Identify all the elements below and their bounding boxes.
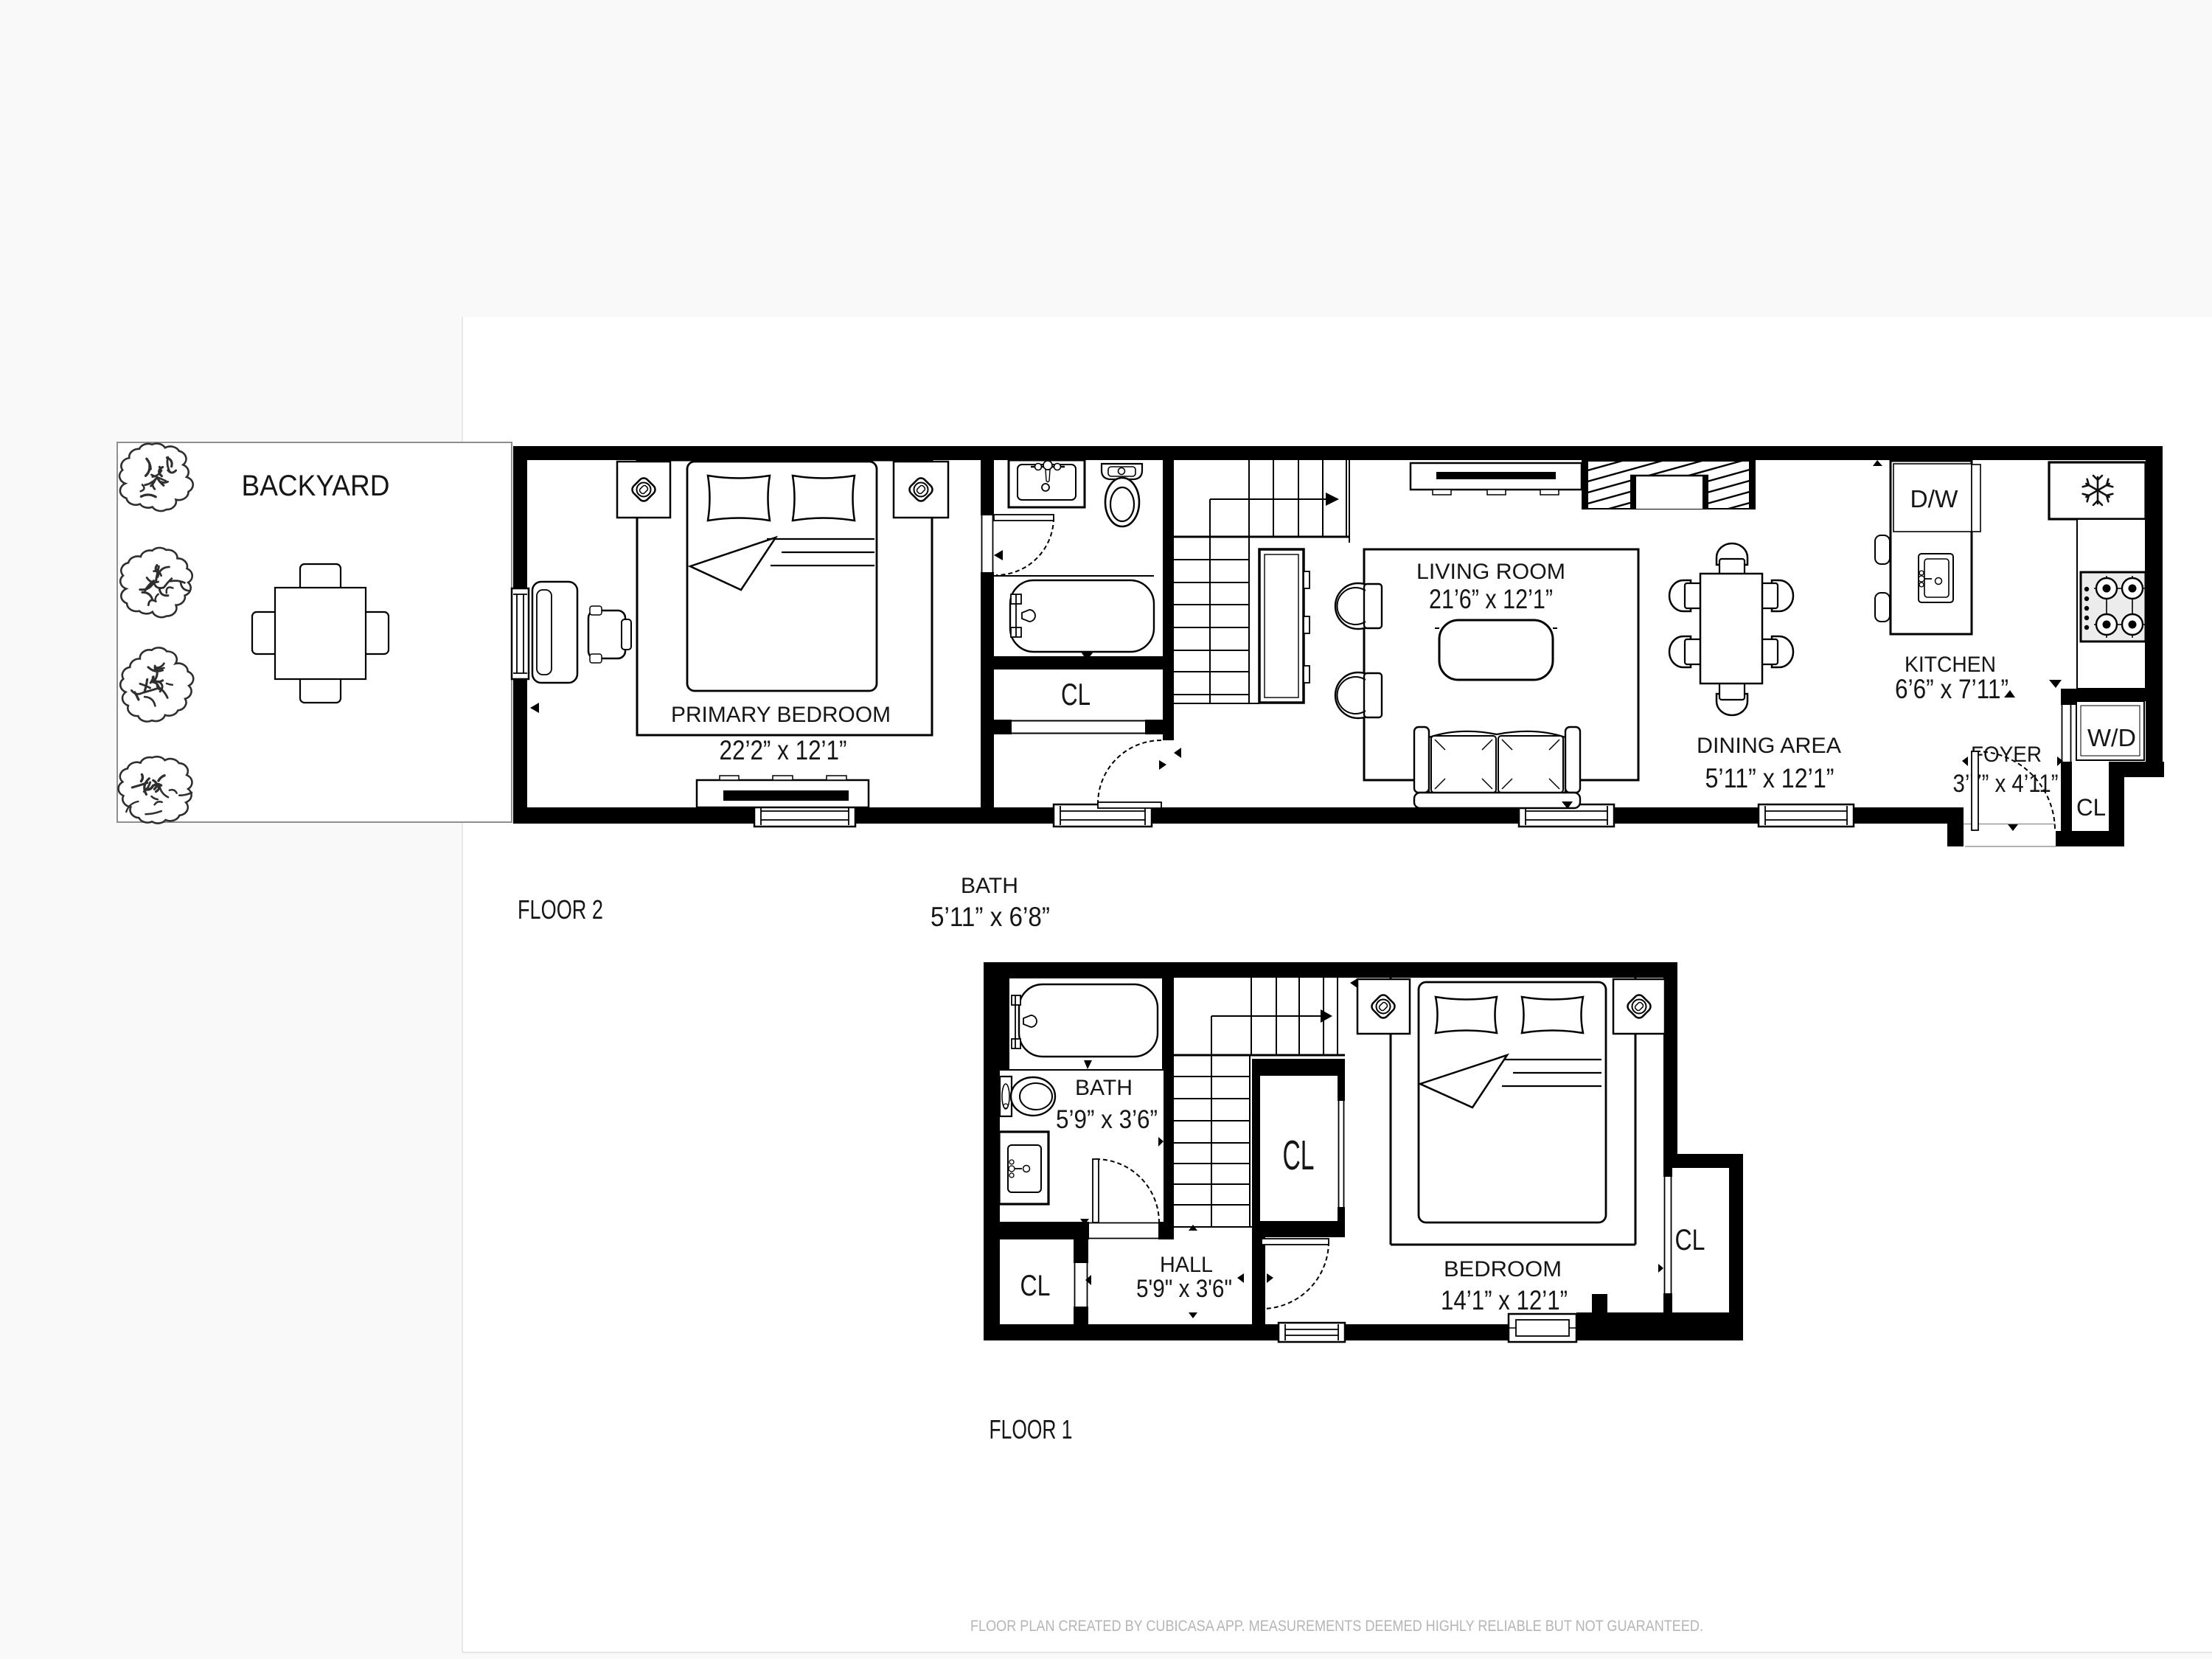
svg-text:5’11” x 12’1”: 5’11” x 12’1”: [1705, 763, 1834, 793]
svg-text:PRIMARY BEDROOM: PRIMARY BEDROOM: [671, 703, 891, 727]
svg-text:22’2” x 12’1”: 22’2” x 12’1”: [720, 735, 847, 765]
svg-text:6’6” x 7’11”: 6’6” x 7’11”: [1895, 674, 2008, 704]
svg-text:5’9” x 3’6”: 5’9” x 3’6”: [1056, 1105, 1158, 1134]
svg-text:5'9" x 3'6": 5'9" x 3'6": [1136, 1275, 1232, 1303]
svg-text:CL: CL: [2076, 794, 2106, 821]
svg-text:FLOOR PLAN CREATED BY CUBICASA: FLOOR PLAN CREATED BY CUBICASA APP. MEAS…: [970, 1618, 1703, 1635]
svg-text:FLOOR 1: FLOOR 1: [990, 1414, 1073, 1444]
svg-text:D/W: D/W: [1910, 485, 1959, 512]
svg-text:14’1” x 12’1”: 14’1” x 12’1”: [1441, 1285, 1568, 1315]
svg-text:W/D: W/D: [2087, 724, 2136, 751]
svg-text:BACKYARD: BACKYARD: [242, 470, 390, 502]
svg-text:CL: CL: [1061, 677, 1091, 712]
svg-text:BATH: BATH: [961, 874, 1018, 898]
svg-text:CL: CL: [1283, 1132, 1315, 1179]
svg-text:DINING AREA: DINING AREA: [1697, 734, 1841, 758]
svg-text:HALL: HALL: [1160, 1253, 1213, 1277]
svg-text:LIVING ROOM: LIVING ROOM: [1416, 560, 1565, 584]
svg-text:BATH: BATH: [1075, 1076, 1133, 1100]
svg-text:BEDROOM: BEDROOM: [1444, 1257, 1562, 1281]
svg-text:3’7” x 4’11”: 3’7” x 4’11”: [1953, 770, 2059, 798]
svg-text:CL: CL: [1675, 1224, 1705, 1256]
svg-text:FLOOR 2: FLOOR 2: [518, 894, 603, 925]
svg-text:21’6” x 12’1”: 21’6” x 12’1”: [1429, 584, 1553, 614]
svg-text:5’11” x 6’8”: 5’11” x 6’8”: [931, 902, 1050, 932]
svg-text:CL: CL: [1020, 1270, 1051, 1302]
svg-text:FOYER: FOYER: [1971, 742, 2042, 767]
